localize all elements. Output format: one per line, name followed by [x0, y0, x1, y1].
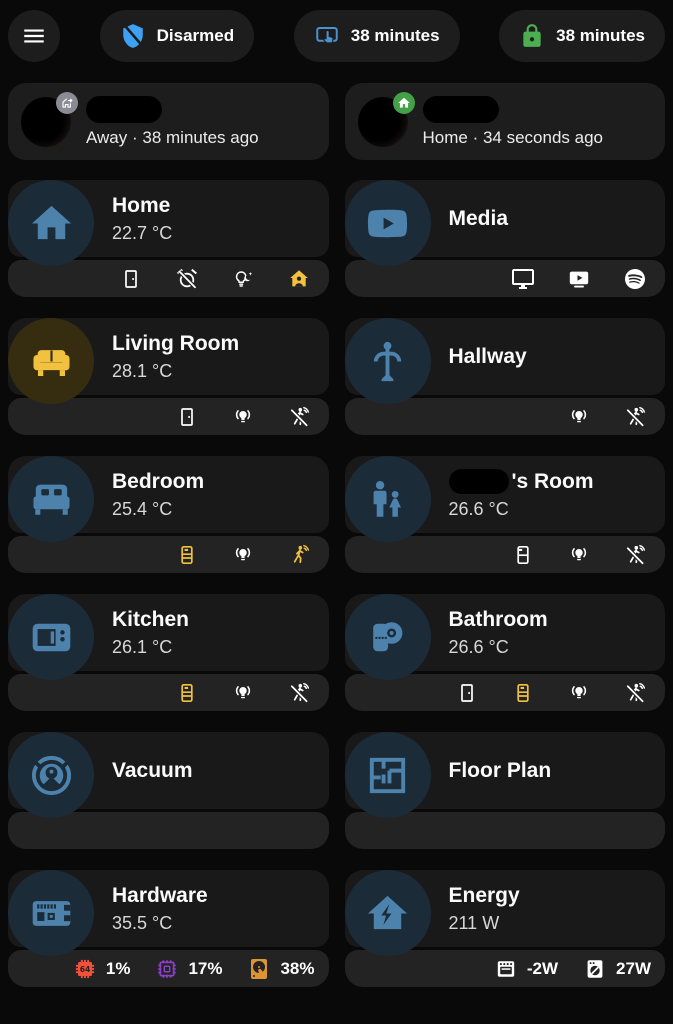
radiator-button[interactable] [175, 681, 199, 705]
youtube-tv-button[interactable] [567, 267, 591, 291]
spotify-icon [623, 267, 647, 291]
chip-label: 38 minutes [351, 26, 440, 46]
card-texts: Kitchen26.1 °C [112, 594, 321, 671]
card-title: Living Room [112, 332, 321, 356]
card-title: Bedroom [112, 470, 321, 494]
home-account-icon [287, 267, 311, 291]
card-living-room[interactable]: Living Room28.1 °C [8, 318, 329, 435]
dashboard: Disarmed38 minutes38 minutes Away · 38 m… [0, 0, 673, 997]
card-texts: Bedroom25.4 °C [112, 456, 321, 533]
harddisk-stat[interactable]: 38% [247, 957, 314, 981]
robot-vacuum-icon[interactable] [8, 732, 94, 818]
home-account-button[interactable] [287, 267, 311, 291]
card-title: Bathroom [449, 608, 658, 632]
person-card[interactable]: Home · 34 seconds ago [345, 83, 666, 160]
card-texts: 's Room26.6 °C [449, 456, 658, 533]
lightbulb-night-button[interactable] [231, 267, 255, 291]
card-subtitle: 26.6 °C [449, 499, 658, 520]
home-lightning-icon[interactable] [345, 870, 431, 956]
radiator-button[interactable] [511, 681, 535, 705]
person-status: Away · 38 minutes ago [86, 128, 259, 148]
motion-sensor-off-button[interactable] [287, 681, 311, 705]
card-kids-room[interactable]: 's Room26.6 °C [345, 456, 666, 573]
coat-rack-icon[interactable] [345, 318, 431, 404]
lightbulb-group-button[interactable] [567, 405, 591, 429]
bed-icon[interactable] [8, 456, 94, 542]
gesture-tap-icon [314, 23, 340, 49]
radiator-icon [175, 681, 199, 705]
card-texts: Living Room28.1 °C [112, 318, 321, 395]
door-icon [119, 267, 143, 291]
door-button[interactable] [175, 405, 199, 429]
card-title: 's Room [449, 469, 658, 494]
card-title: Hardware [112, 884, 321, 908]
svg-text:64: 64 [80, 965, 91, 974]
lightbulb-group-button[interactable] [231, 405, 255, 429]
card-energy[interactable]: Energy211 W-2W27W [345, 870, 666, 987]
card-subtitle: 211 W [449, 913, 658, 934]
radiator-icon [175, 543, 199, 567]
radiator-disabled-button[interactable] [511, 543, 535, 567]
chip-label: Disarmed [157, 26, 234, 46]
rooms-grid: Home22.7 °CMediaLiving Room28.1 °CHallwa… [8, 180, 665, 987]
card-texts: Energy211 W [449, 870, 658, 947]
chip-label: 38 minutes [556, 26, 645, 46]
top-bar: Disarmed38 minutes38 minutes [8, 10, 665, 62]
lightbulb-group-icon [231, 681, 255, 705]
card-title: Home [112, 194, 321, 218]
motion-sensor-icon [287, 543, 311, 567]
radiator-button[interactable] [175, 543, 199, 567]
card-title: Vacuum [112, 759, 321, 783]
memory-icon [155, 957, 179, 981]
card-texts: Vacuum [112, 732, 321, 809]
card-subtitle: 28.1 °C [112, 361, 321, 382]
harddisk-icon [247, 957, 271, 981]
human-male-child-icon[interactable] [345, 456, 431, 542]
card-subtitle: 25.4 °C [112, 499, 321, 520]
person-avatar-wrap [358, 97, 408, 147]
motion-sensor-off-icon [623, 405, 647, 429]
washing-machine-icon [583, 957, 607, 981]
card-kitchen[interactable]: Kitchen26.1 °C [8, 594, 329, 711]
cpu-64-bit-stat[interactable]: 641% [73, 957, 131, 981]
stat-value: 38% [280, 959, 314, 979]
card-title: Media [449, 207, 658, 231]
card-hardware[interactable]: Hardware35.5 °C641%17%38% [8, 870, 329, 987]
motion-sensor-off-icon [623, 681, 647, 705]
motion-sensor-off-icon [287, 681, 311, 705]
radiator-icon [511, 681, 535, 705]
lightbulb-group-icon [567, 543, 591, 567]
lightbulb-night-icon [231, 267, 255, 291]
sofa-icon[interactable] [8, 318, 94, 404]
person-name-redacted [86, 96, 162, 123]
spotify-button[interactable] [623, 267, 647, 291]
card-texts: Bathroom26.6 °C [449, 594, 658, 671]
card-texts: Media [449, 180, 658, 257]
card-title: Hallway [449, 345, 658, 369]
card-home[interactable]: Home22.7 °C [8, 180, 329, 297]
card-floor-plan[interactable]: Floor Plan [345, 732, 666, 849]
paper-roll-icon[interactable] [345, 594, 431, 680]
person-status: Home · 34 seconds ago [423, 128, 604, 148]
lightbulb-group-button[interactable] [567, 543, 591, 567]
stove-stat[interactable]: -2W [494, 957, 558, 981]
motion-sensor-button[interactable] [287, 543, 311, 567]
person-badge-home-export-icon [56, 92, 78, 114]
door-icon [455, 681, 479, 705]
card-subtitle: 26.6 °C [449, 637, 658, 658]
chip-shield-off[interactable]: Disarmed [100, 10, 254, 62]
youtube-tv-icon [567, 267, 591, 291]
menu-icon [21, 23, 47, 49]
card-texts: Hardware35.5 °C [112, 870, 321, 947]
redacted-room-name [449, 469, 509, 494]
radiator-disabled-icon [511, 543, 535, 567]
home-solid-icon[interactable] [8, 180, 94, 266]
card-vacuum[interactable]: Vacuum [8, 732, 329, 849]
memory-stat[interactable]: 17% [155, 957, 222, 981]
monitor-button[interactable] [511, 267, 535, 291]
floor-plan-icon[interactable] [345, 732, 431, 818]
motion-sensor-off-button[interactable] [287, 405, 311, 429]
microwave-icon[interactable] [8, 594, 94, 680]
card-hallway[interactable]: Hallway [345, 318, 666, 435]
chip-lock[interactable]: 38 minutes [499, 10, 665, 62]
stat-value: -2W [527, 959, 558, 979]
card-texts: Floor Plan [449, 732, 658, 809]
lightbulb-group-button[interactable] [231, 681, 255, 705]
person-info: Home · 34 seconds ago [423, 96, 604, 148]
stat-value: 27W [616, 959, 651, 979]
card-title: Energy [449, 884, 658, 908]
person-name-redacted [423, 96, 499, 123]
youtube-icon[interactable] [345, 180, 431, 266]
motion-sensor-off-button[interactable] [623, 681, 647, 705]
lightbulb-group-button[interactable] [231, 543, 255, 567]
card-texts: Hallway [449, 318, 658, 395]
raspberry-pi-icon[interactable] [8, 870, 94, 956]
lightbulb-group-icon [231, 543, 255, 567]
shield-off-icon [120, 23, 146, 49]
door-button[interactable] [119, 267, 143, 291]
lightbulb-group-icon [231, 405, 255, 429]
card-subtitle: 26.1 °C [112, 637, 321, 658]
card-title: Kitchen [112, 608, 321, 632]
stove-icon [494, 957, 518, 981]
card-subtitle: 35.5 °C [112, 913, 321, 934]
menu-button[interactable] [8, 10, 60, 62]
person-info: Away · 38 minutes ago [86, 96, 259, 148]
persons-row: Away · 38 minutes agoHome · 34 seconds a… [8, 83, 665, 160]
motion-sensor-off-icon [287, 405, 311, 429]
motion-sensor-off-button[interactable] [623, 405, 647, 429]
chip-gesture-tap[interactable]: 38 minutes [294, 10, 460, 62]
alarm-off-icon [175, 267, 199, 291]
lightbulb-group-button[interactable] [567, 681, 591, 705]
card-bedroom[interactable]: Bedroom25.4 °C [8, 456, 329, 573]
alarm-off-button[interactable] [175, 267, 199, 291]
stat-value: 17% [188, 959, 222, 979]
card-texts: Home22.7 °C [112, 180, 321, 257]
person-card[interactable]: Away · 38 minutes ago [8, 83, 329, 160]
card-title: Floor Plan [449, 759, 658, 783]
lightbulb-group-icon [567, 405, 591, 429]
card-media[interactable]: Media [345, 180, 666, 297]
lightbulb-group-icon [567, 681, 591, 705]
door-icon [175, 405, 199, 429]
lock-icon [519, 23, 545, 49]
door-button[interactable] [455, 681, 479, 705]
motion-sensor-off-icon [623, 543, 647, 567]
stat-value: 1% [106, 959, 131, 979]
person-avatar-wrap [21, 97, 71, 147]
monitor-icon [511, 267, 535, 291]
card-bathroom[interactable]: Bathroom26.6 °C [345, 594, 666, 711]
cpu-64-bit-icon: 64 [73, 957, 97, 981]
card-subtitle: 22.7 °C [112, 223, 321, 244]
person-badge-home-solid-icon [393, 92, 415, 114]
motion-sensor-off-button[interactable] [623, 543, 647, 567]
washing-machine-stat[interactable]: 27W [583, 957, 651, 981]
